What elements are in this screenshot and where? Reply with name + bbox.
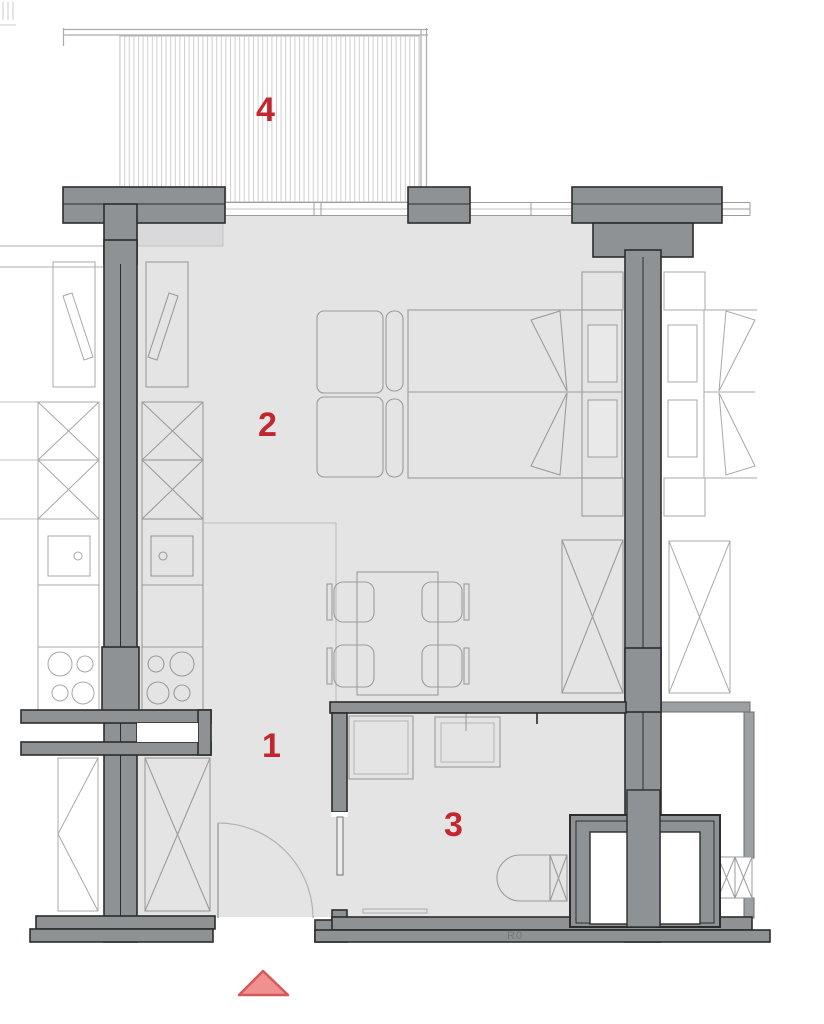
- wall-top-mid: [408, 187, 470, 223]
- wall-bathroom-top: [330, 702, 626, 713]
- room-label-bathroom: 3: [444, 806, 463, 844]
- junction-niche: [137, 723, 198, 742]
- wall-junction-band-bottom: [21, 742, 211, 755]
- balcony-corner-marks: [0, 2, 16, 25]
- neighbor-pillow: [719, 311, 755, 391]
- entrance-marker: [239, 971, 288, 995]
- neighbor-bath-wall-v: [744, 712, 754, 858]
- insulation-hatch: [718, 857, 752, 898]
- floor-plan-drawing: 4 2 1 3 R0: [0, 0, 824, 1024]
- neighbor-tall-units: [0, 402, 99, 519]
- shaft-pillar: [627, 790, 660, 927]
- wall-bottom-left-b: [30, 929, 213, 942]
- wall-top-right: [572, 187, 722, 223]
- balcony: [0, 2, 428, 215]
- neighbor-bath-wall-v2: [744, 898, 754, 918]
- shaft-cell: [660, 832, 700, 924]
- room-label-balcony: 4: [256, 91, 275, 129]
- wall-top-left: [63, 187, 225, 223]
- floor-plan: 4 2 1 3 R0: [0, 0, 824, 1024]
- neighbor-wardrobe-x-bottom: [58, 758, 98, 911]
- window-neighbor-left: [0, 246, 104, 267]
- headboard-pad: [588, 325, 617, 382]
- shaft-cell: [590, 832, 628, 924]
- pillar-right-mid: [625, 648, 661, 712]
- neighbor-wardrobe-open: [53, 262, 95, 387]
- wall-bottom-left-a: [36, 916, 215, 929]
- neighbor-right-furniture: [664, 272, 757, 693]
- wall-junction-band-top: [21, 710, 211, 723]
- neighbor-kitchen: [38, 519, 99, 710]
- neighbor-wardrobe-x-right: [669, 541, 730, 693]
- shaft-label: R0: [507, 930, 523, 942]
- neighbor-left-furniture: [0, 262, 99, 911]
- pillar-left-mid: [102, 647, 139, 712]
- neighbor-wardrobe-door: [63, 293, 93, 360]
- window-neighbor-right: [722, 203, 750, 216]
- wall-bathroom-left: [332, 713, 347, 812]
- bathroom-door-leaf: [337, 817, 343, 875]
- wall-bottom-bath-b: [315, 930, 770, 942]
- headboard-pad: [588, 400, 617, 457]
- floor-light-band: [137, 223, 223, 246]
- neighbor-bath-wall-h: [661, 702, 750, 712]
- room-label-living: 2: [258, 406, 277, 444]
- neighbor-pillow: [719, 393, 755, 475]
- window-balcony-door: [225, 203, 408, 216]
- room-label-hall: 1: [262, 727, 281, 765]
- wall-junction-cap: [198, 710, 211, 755]
- neighbor-bed: [664, 272, 757, 516]
